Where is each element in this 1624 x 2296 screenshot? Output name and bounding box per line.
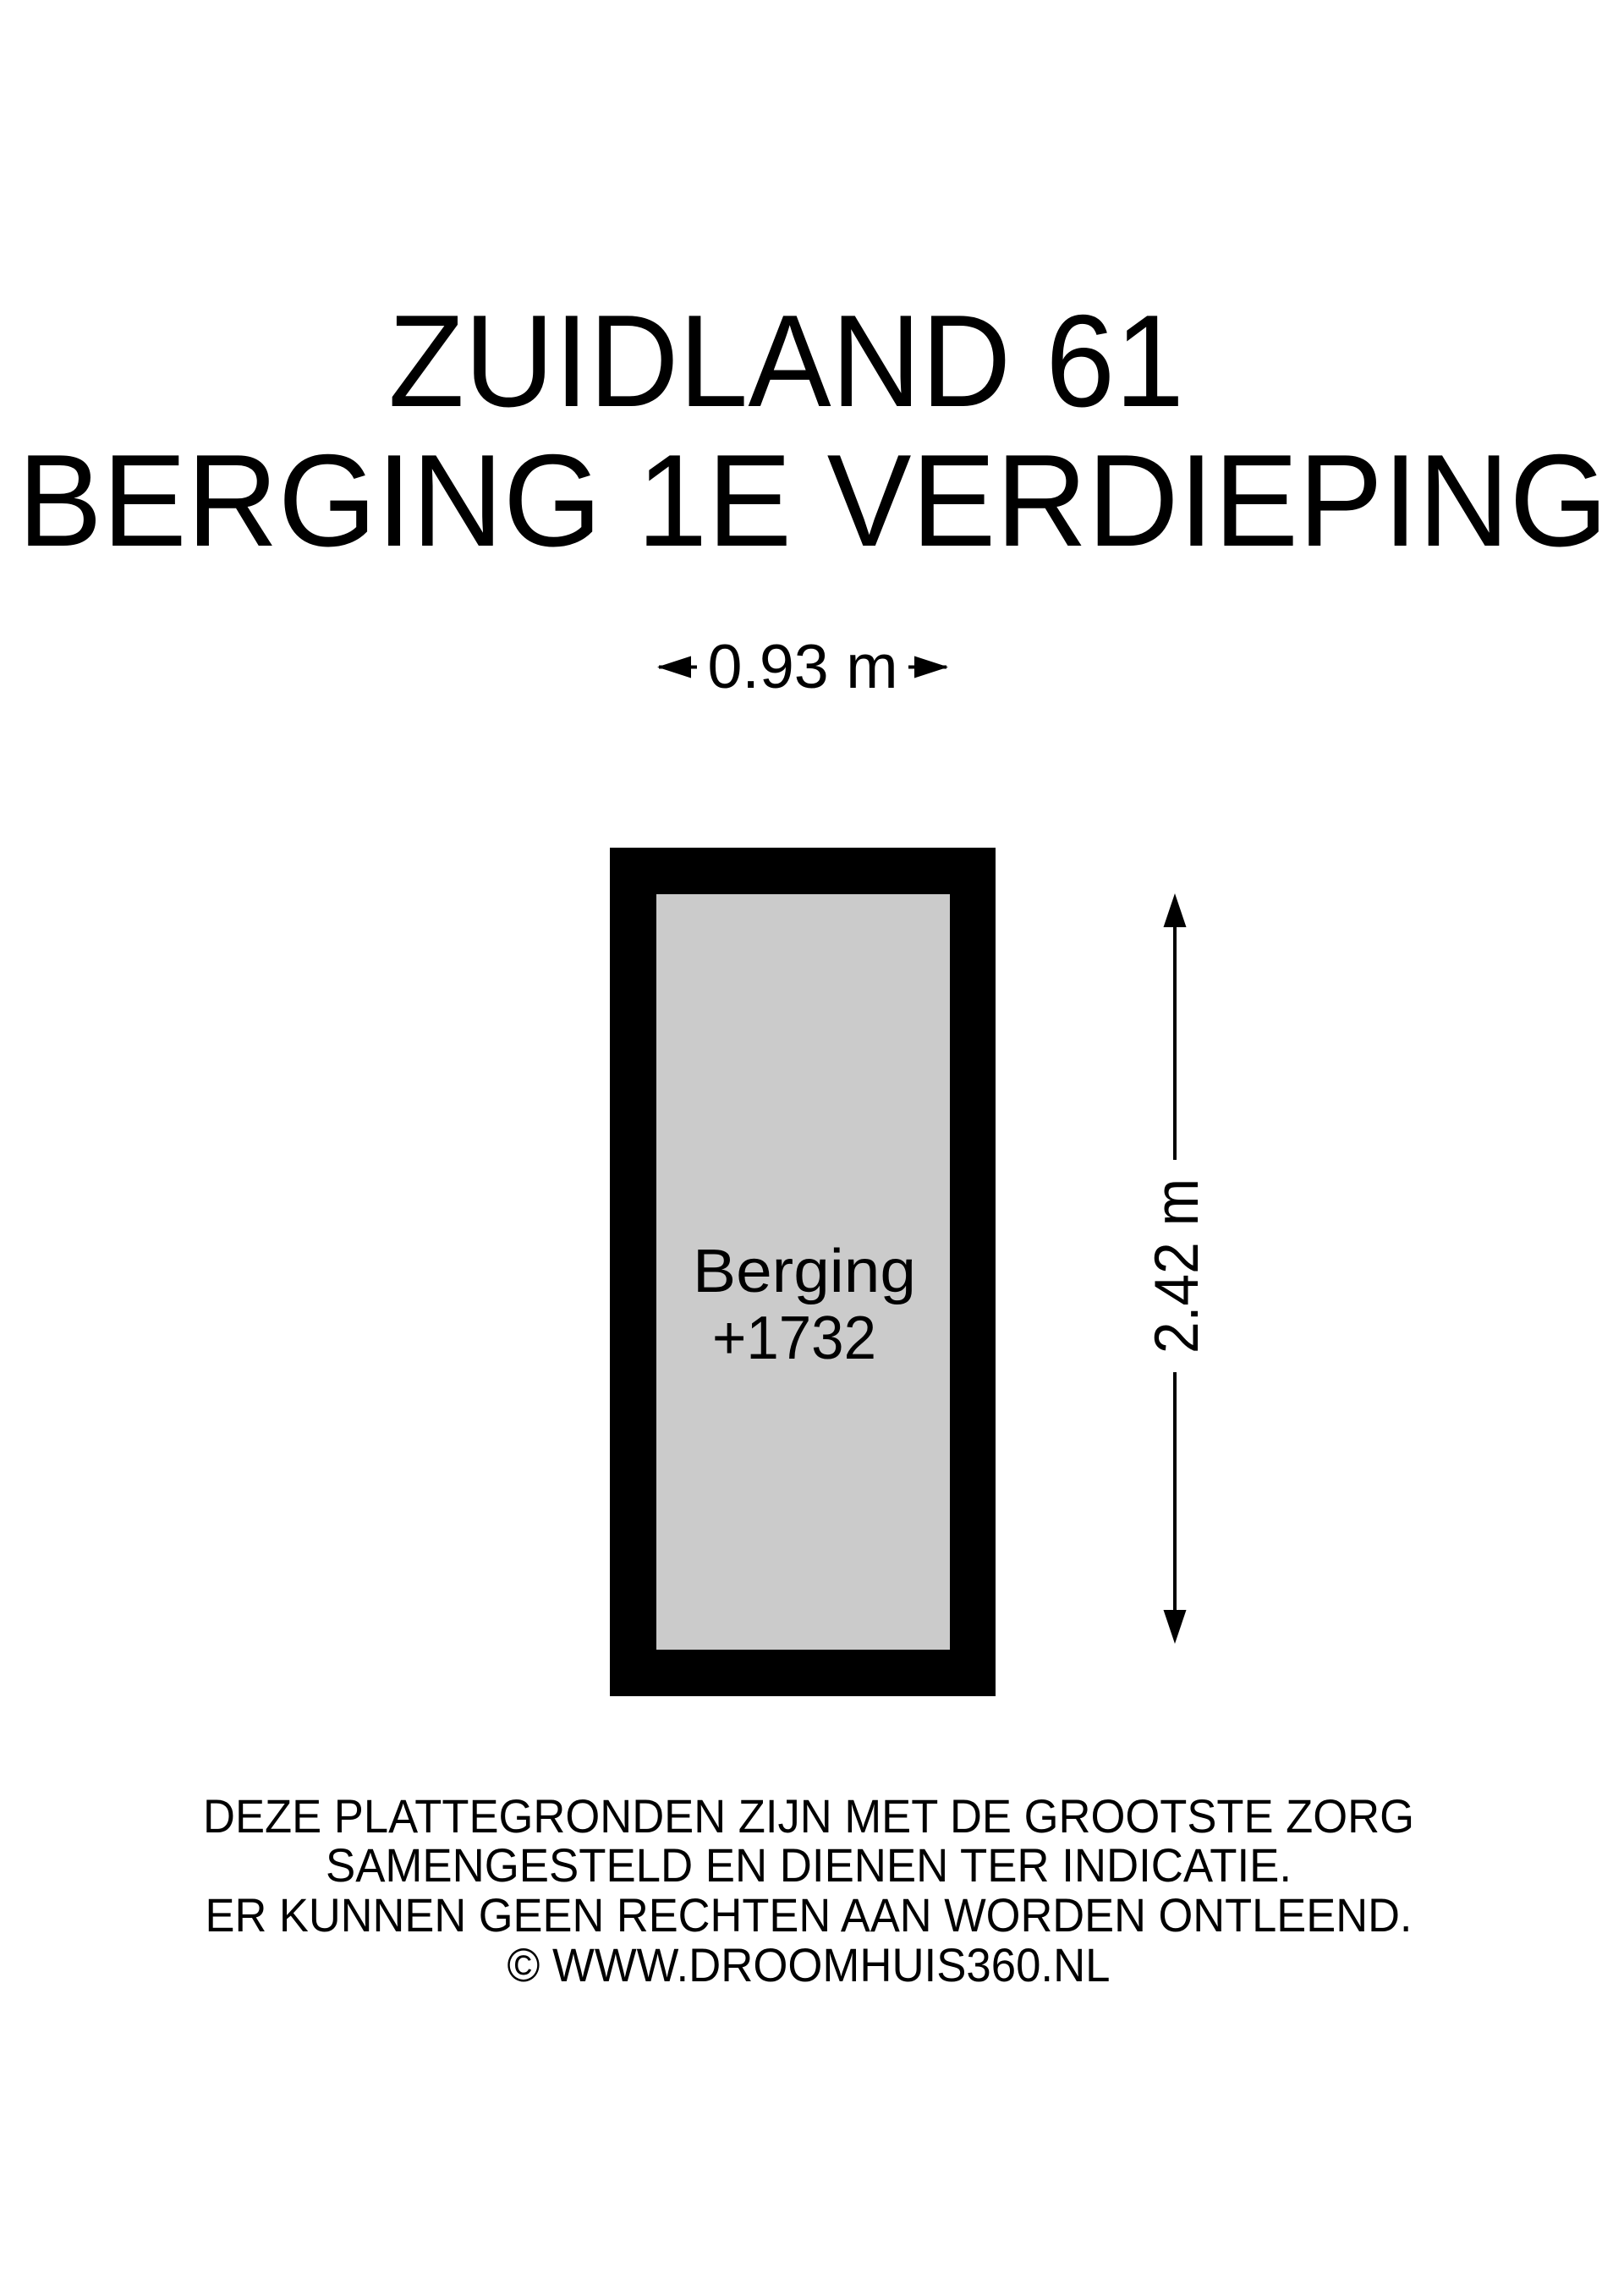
svg-text:DEZE PLATTEGRONDEN ZIJN MET DE: DEZE PLATTEGRONDEN ZIJN MET DE GROOTSTE … <box>203 1789 1414 1843</box>
svg-text:SAMENGESTELD EN DIENEN TER IND: SAMENGESTELD EN DIENEN TER INDICATIE. <box>326 1838 1292 1892</box>
svg-text:ER KUNNEN GEEN RECHTEN AAN WOR: ER KUNNEN GEEN RECHTEN AAN WORDEN ONTLEE… <box>206 1888 1413 1942</box>
svg-text:ZUIDLAND 61: ZUIDLAND 61 <box>388 288 1184 434</box>
svg-text:Berging: Berging <box>693 1238 916 1305</box>
svg-text:© WWW.DROOMHUIS360.NL: © WWW.DROOMHUIS360.NL <box>507 1938 1111 1991</box>
svg-text:2.42 m: 2.42 m <box>1143 1178 1211 1354</box>
svg-text:0.93 m: 0.93 m <box>708 633 898 701</box>
svg-text:+1732: +1732 <box>712 1305 876 1372</box>
svg-text:BERGING 1E VERDIEPING: BERGING 1E VERDIEPING <box>18 427 1608 574</box>
